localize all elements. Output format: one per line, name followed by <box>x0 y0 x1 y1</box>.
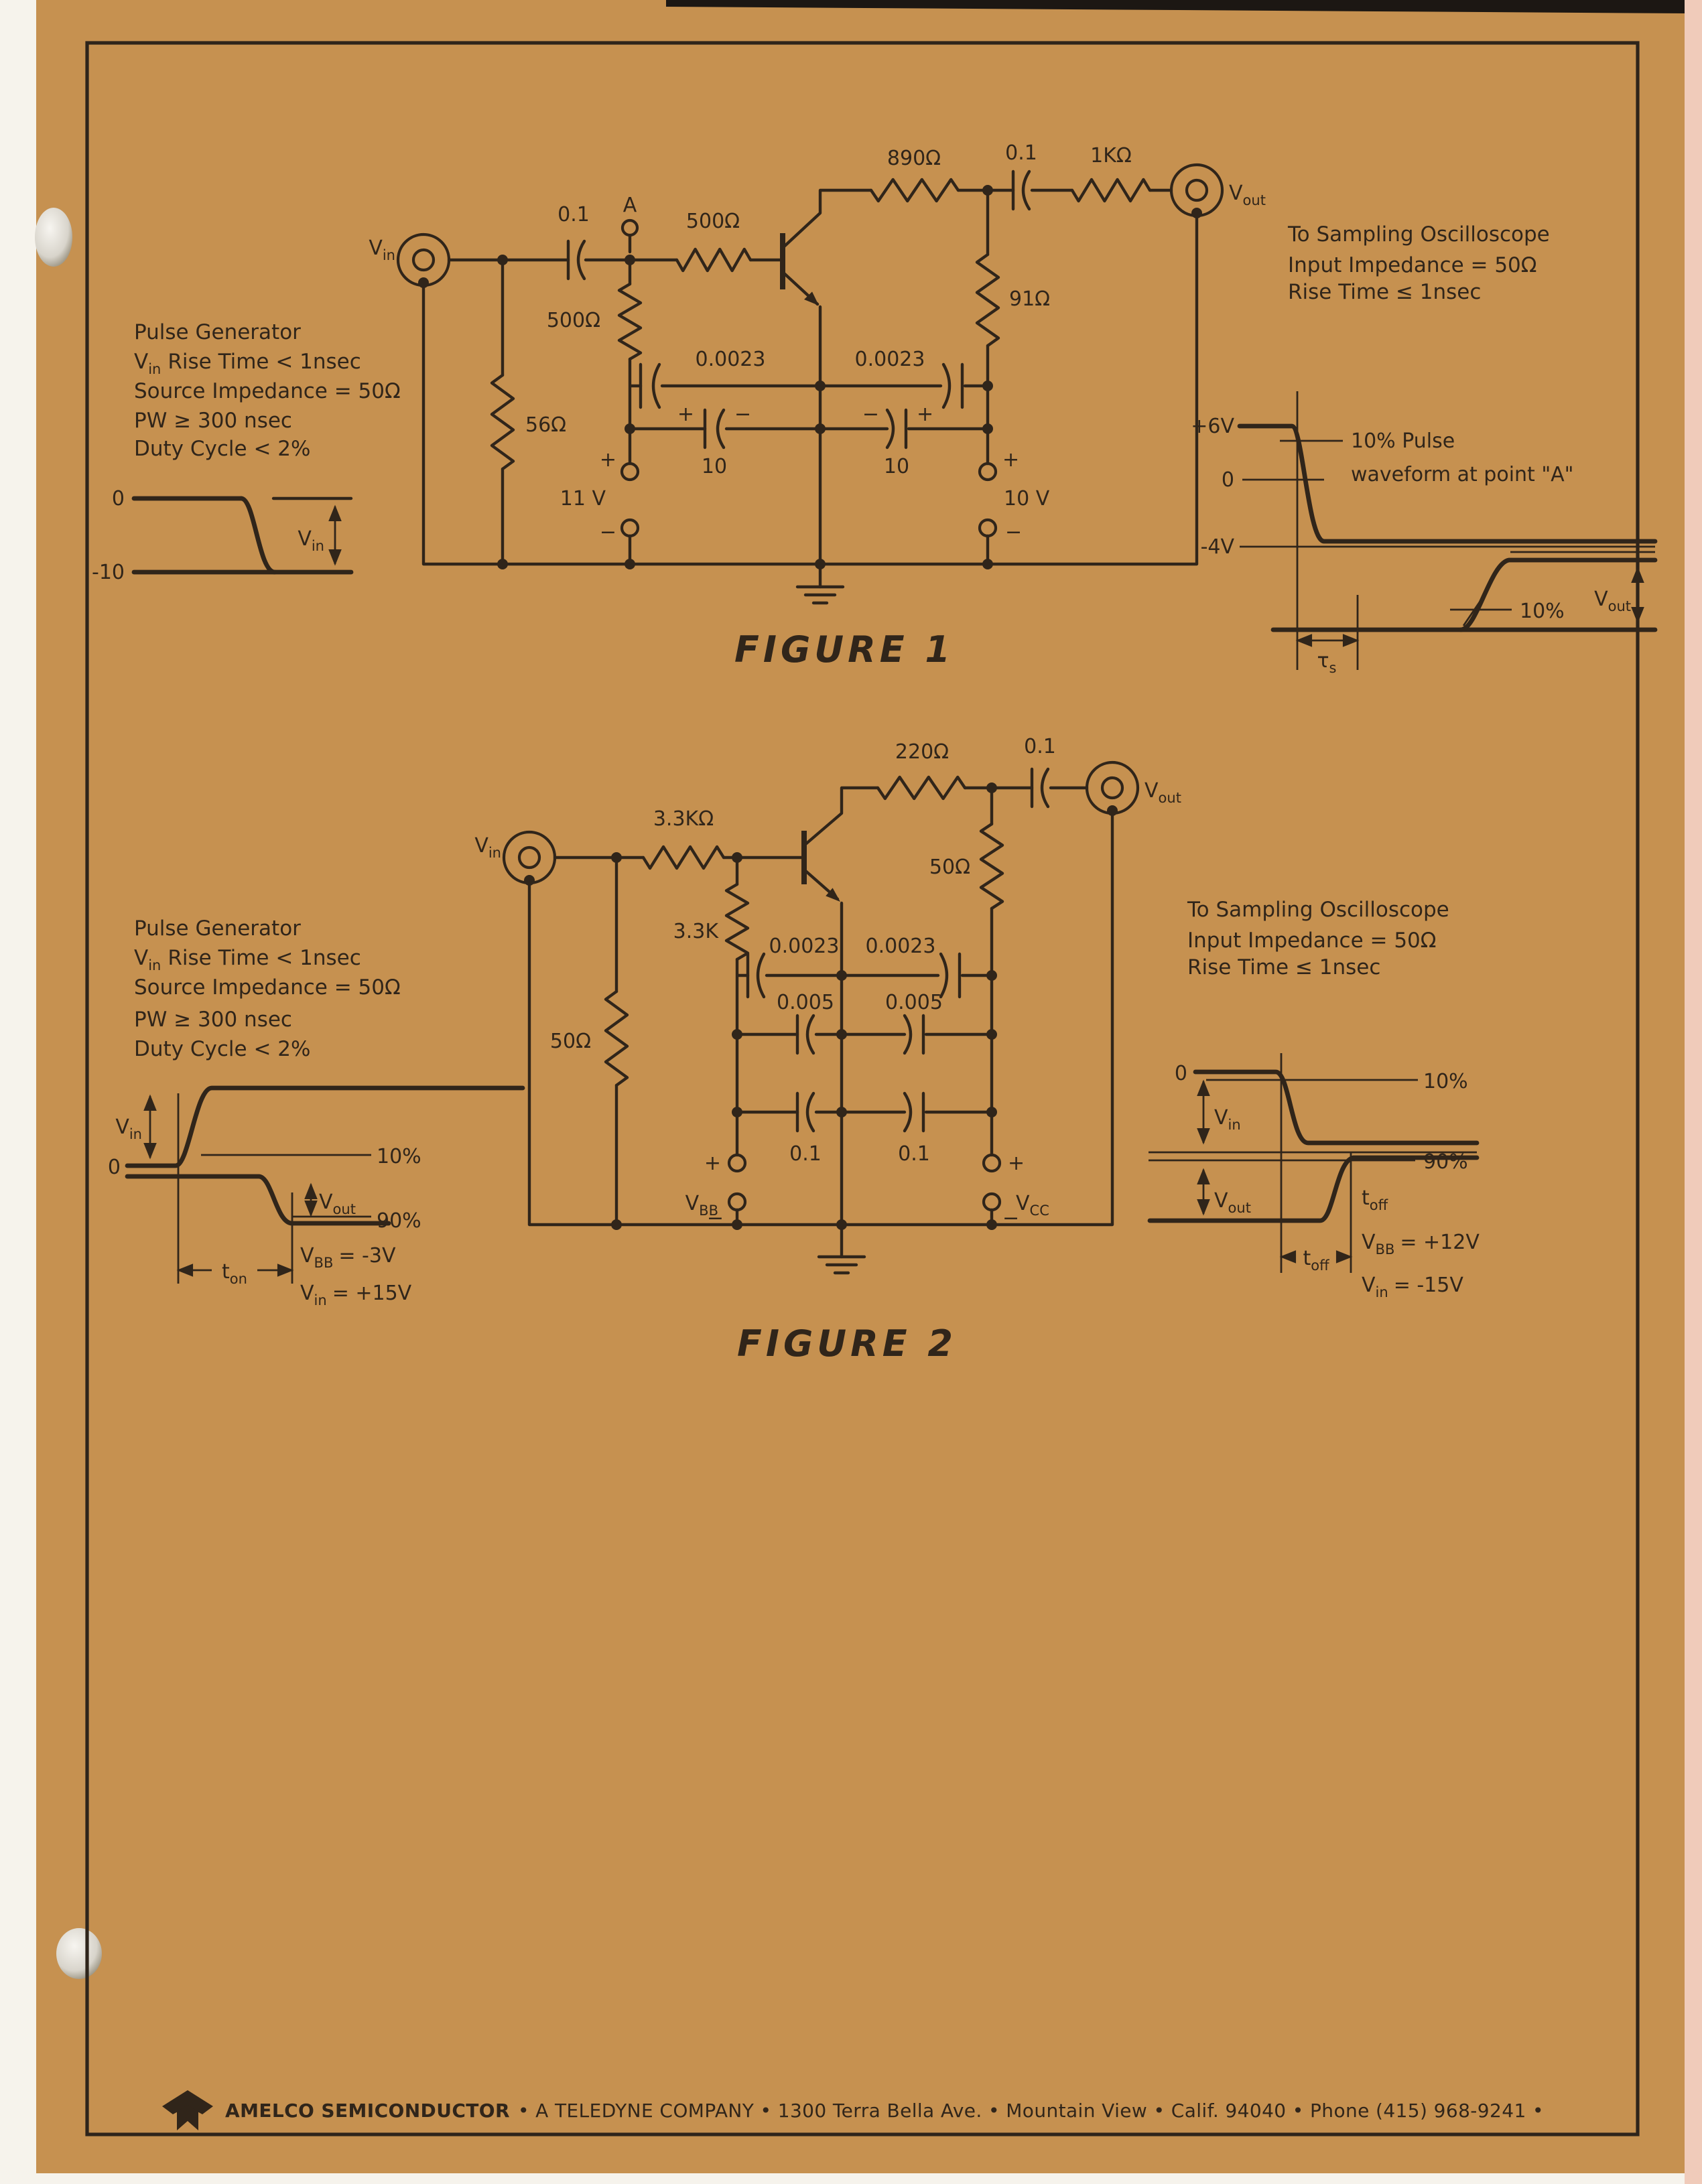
scope-note-1: To Sampling Oscilloscope <box>1187 898 1449 922</box>
resistor-3.3k-series-label: 3.3KΩ <box>653 807 714 831</box>
vcc-plus: + <box>1008 1152 1025 1175</box>
resistor-500-shunt-label: 500Ω <box>547 309 600 332</box>
fig2-note-source-impedance: Source Impedance = 50Ω <box>134 975 401 1000</box>
cap-input-label: 0.1 <box>558 203 590 226</box>
ten-pct-label: 10% <box>377 1145 421 1168</box>
pulse-note-line2: waveform at point "A" <box>1351 463 1573 486</box>
scope-note-3: Rise Time ≤ 1nsec <box>1288 280 1481 304</box>
polarity-plus: + <box>677 403 694 426</box>
punch-hole-top <box>35 208 72 267</box>
scope-note-2: Input Impedance = 50Ω <box>1288 253 1536 277</box>
cap-10-left-label: 10 <box>702 455 727 478</box>
fig1-note-title: Pulse Generator <box>134 320 301 344</box>
resistor-220-label: 220Ω <box>895 740 949 764</box>
resistor-50-input-label: 50Ω <box>550 1030 591 1053</box>
scope-note-1: To Sampling Oscilloscope <box>1287 222 1550 247</box>
supply-plus: + <box>1002 448 1019 472</box>
resistor-3.3k-shunt-label: 3.3K <box>673 920 720 943</box>
figure-1-caption: FIGURE 1 <box>734 628 954 671</box>
scope-note-3: Rise Time ≤ 1nsec <box>1187 955 1380 979</box>
supply-11v-label: 11 V <box>560 487 606 510</box>
cap-output-label: 0.1 <box>1024 735 1056 758</box>
fig2-note-duty-cycle: Duty Cycle < 2% <box>134 1037 310 1061</box>
resistor-91-label: 91Ω <box>1009 287 1050 311</box>
minus4v-label: -4V <box>1201 535 1235 559</box>
resistor-890-label: 890Ω <box>887 147 941 170</box>
cap-005-left-label: 0.005 <box>777 991 834 1014</box>
right-scan-strip <box>1685 0 1702 2184</box>
pulse-note-line1: 10% Pulse <box>1351 429 1455 453</box>
ninety-pct-label: 90% <box>377 1209 421 1233</box>
supply-minus: − <box>600 521 616 544</box>
polarity-plus: + <box>917 403 933 426</box>
resistor-500-series-label: 500Ω <box>686 210 740 233</box>
cap-output-label: 0.1 <box>1005 141 1037 165</box>
fig1-note-duty-cycle: Duty Cycle < 2% <box>134 437 310 461</box>
cap-01-left-label: 0.1 <box>789 1142 822 1166</box>
scanned-datasheet-page: Pulse Generator VinRise Time < 1nsec Sou… <box>0 0 1702 2184</box>
resistor-1k-label: 1KΩ <box>1090 144 1132 167</box>
point-a-label: A <box>623 194 637 217</box>
zero-label: 0 <box>108 1156 121 1179</box>
ninety-pct-label: 90% <box>1423 1150 1468 1174</box>
vbb-minus: − <box>707 1207 724 1230</box>
level-0-label: 0 <box>112 487 125 510</box>
fig1-note-pw: PW ≥ 300 nsec <box>134 409 292 433</box>
vbb-plus: + <box>704 1152 721 1175</box>
ten-pct-label: 10% <box>1520 600 1565 623</box>
figure-2-caption: FIGURE 2 <box>737 1322 957 1365</box>
fig1-note-source-impedance: Source Impedance = 50Ω <box>134 379 401 403</box>
fig2-note-pw: PW ≥ 300 nsec <box>134 1008 292 1032</box>
footer-address-line: AMELCO SEMICONDUCTOR• A TELEDYNE COMPANY… <box>225 2100 1544 2122</box>
fig2-note-rise-time: VinRise Time < 1nsec <box>134 946 361 973</box>
supply-plus: + <box>600 448 616 472</box>
resistor-56-label: 56Ω <box>525 413 566 437</box>
cap-0023-left-label: 0.0023 <box>769 935 840 958</box>
vcc-minus: − <box>1002 1207 1019 1230</box>
cap-10-right-label: 10 <box>884 455 909 478</box>
level-minus10-label: -10 <box>92 561 125 584</box>
resistor-50-load-label: 50Ω <box>929 856 970 879</box>
supply-minus: − <box>1005 521 1022 544</box>
scope-note-2: Input Impedance = 50Ω <box>1187 929 1436 953</box>
zero-label: 0 <box>1175 1062 1187 1085</box>
fig1-note-rise-time: VinRise Time < 1nsec <box>134 350 361 377</box>
punch-hole-bottom <box>56 1928 102 1979</box>
polarity-minus: − <box>734 403 751 426</box>
cap-005-right-label: 0.005 <box>885 991 943 1014</box>
fig2-note-title: Pulse Generator <box>134 916 301 941</box>
cap-0023-right-label: 0.0023 <box>855 348 925 371</box>
ten-pct-label: 10% <box>1423 1070 1468 1093</box>
cap-01-right-label: 0.1 <box>898 1142 930 1166</box>
zero-label: 0 <box>1222 468 1234 492</box>
supply-10v-label: 10 V <box>1004 487 1050 510</box>
polarity-minus: − <box>862 403 879 426</box>
cap-0023-right-label: 0.0023 <box>866 935 936 958</box>
cap-0023-left-label: 0.0023 <box>696 348 766 371</box>
plus6v-label: +6V <box>1191 415 1234 438</box>
